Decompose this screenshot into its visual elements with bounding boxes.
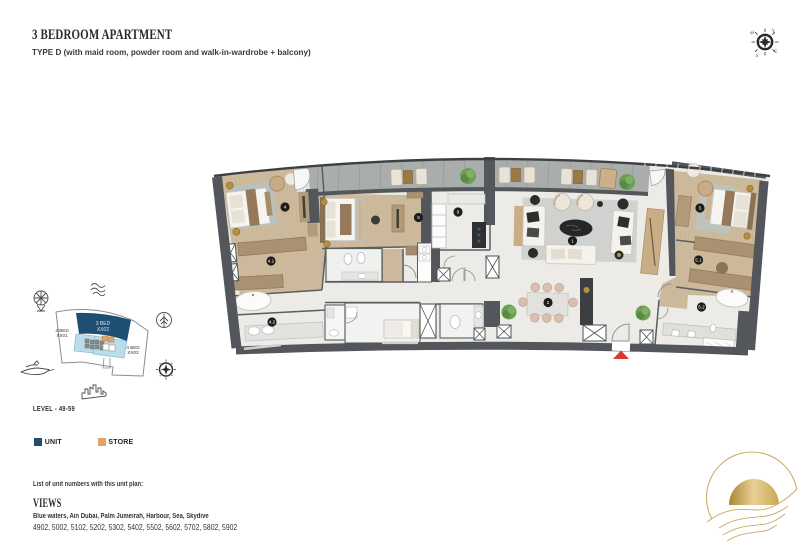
svg-text:S: S (755, 53, 760, 59)
svg-text:XX03: XX03 (127, 350, 139, 355)
svg-text:5: 5 (699, 206, 702, 211)
svg-text:5.1: 5.1 (695, 258, 702, 263)
svg-text:6: 6 (417, 215, 420, 220)
svg-text:4.2: 4.2 (269, 320, 276, 325)
svg-text:9: 9 (457, 210, 460, 215)
svg-text:2: 2 (547, 300, 550, 305)
svg-text:XX01: XX01 (56, 333, 68, 338)
svg-text:N: N (771, 28, 776, 34)
svg-text:4.1: 4.1 (268, 259, 275, 264)
svg-text:1: 1 (571, 239, 574, 244)
svg-text:XX02: XX02 (97, 327, 109, 333)
svg-text:E: E (774, 48, 779, 54)
svg-text:W: W (749, 29, 756, 36)
svg-text:4: 4 (284, 205, 287, 210)
svg-text:5.2: 5.2 (698, 305, 705, 310)
